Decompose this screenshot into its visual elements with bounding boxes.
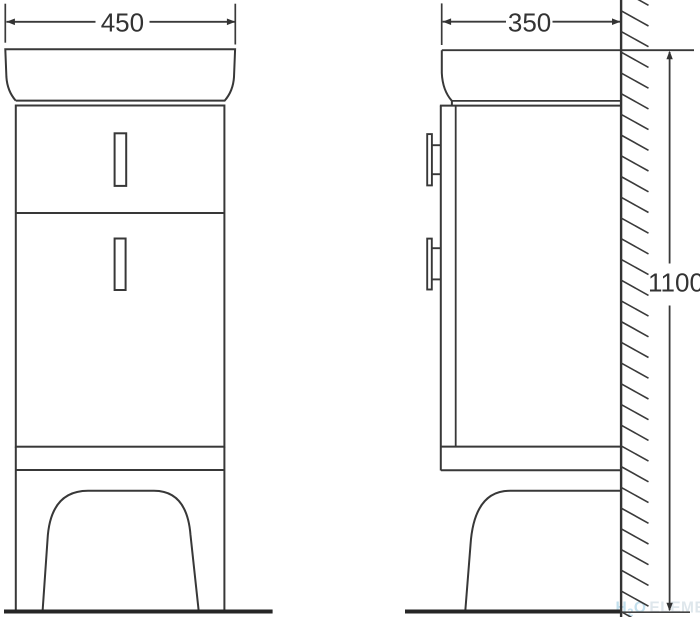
svg-text:1100: 1100 (648, 267, 700, 297)
svg-text:450: 450 (101, 7, 144, 37)
svg-text:350: 350 (508, 7, 551, 37)
